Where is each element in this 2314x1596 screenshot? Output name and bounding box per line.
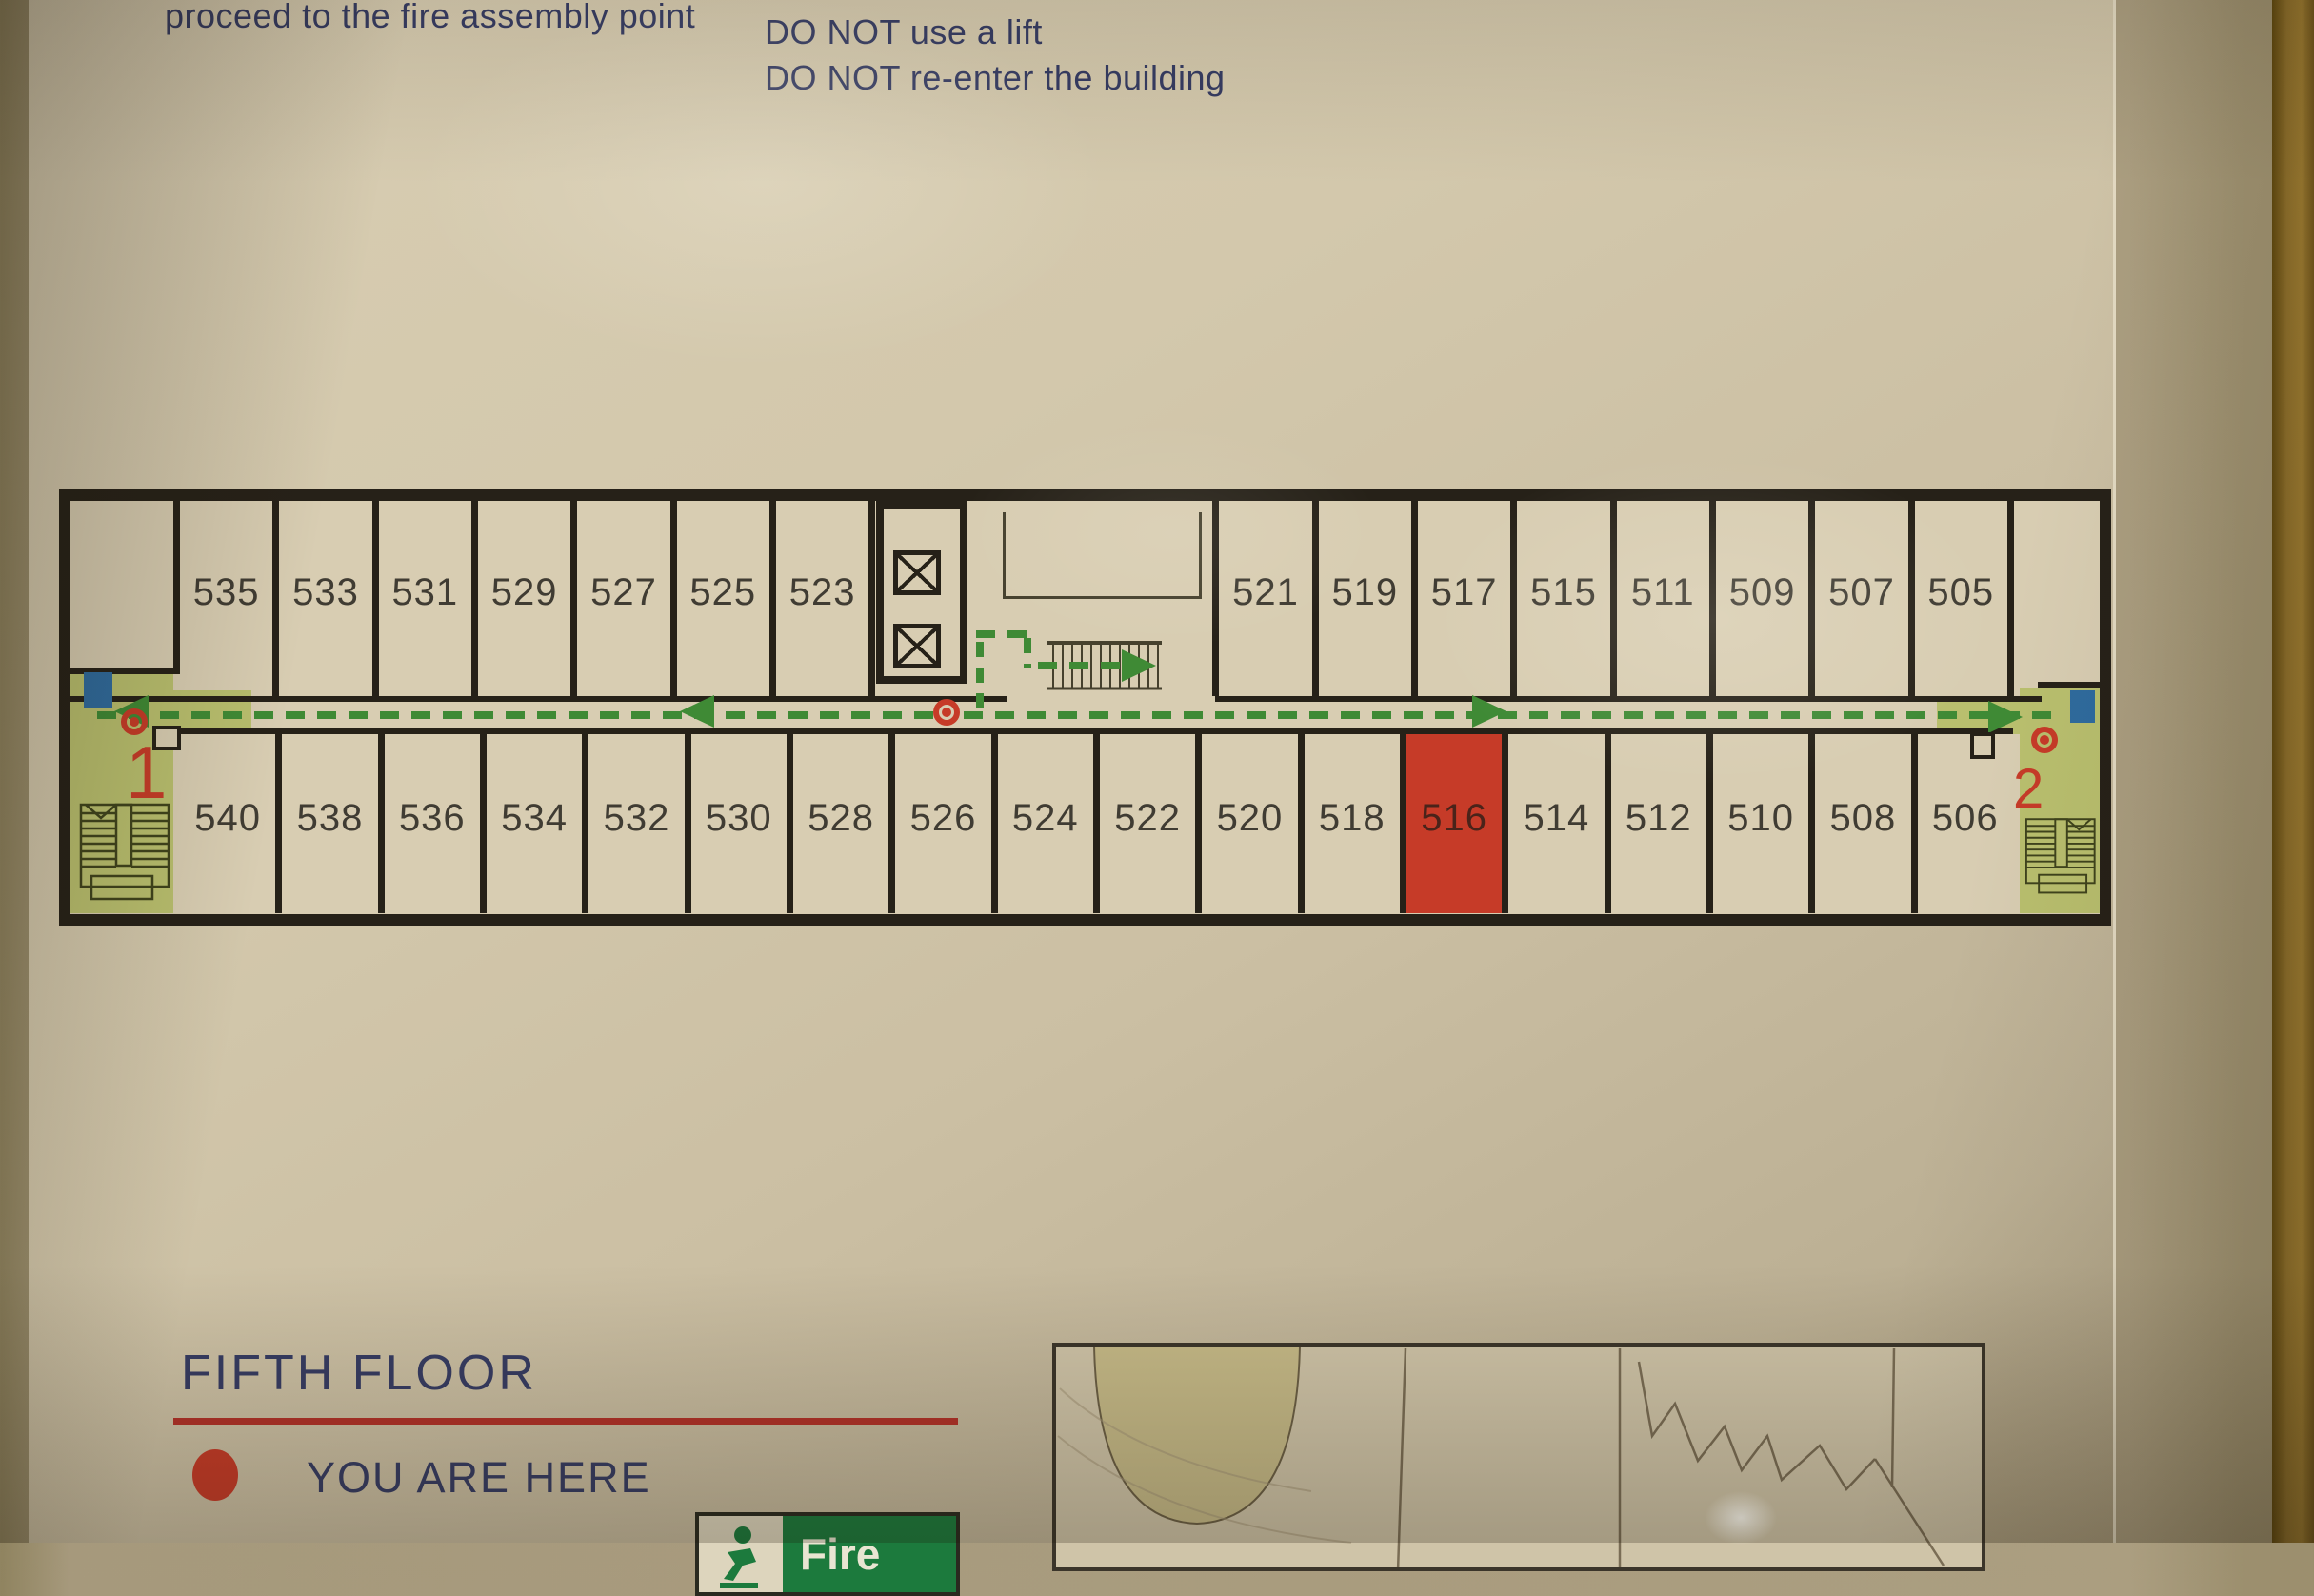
room-number: 540 [194,797,261,840]
you-are-here-label: YOU ARE HERE [307,1453,651,1503]
lobby-recess-wall [1003,512,1006,598]
room-536: 536 [385,734,487,913]
refuge-point-icon-right [2070,690,2095,723]
route-branch-stem [1038,662,1122,669]
room-number: 519 [1331,571,1398,614]
corridor-route-right [964,711,2054,719]
instruction-line-reenter: DO NOT re-enter the building [765,55,1374,101]
lift-block [876,501,967,684]
lobby-recess-wall [1003,596,1202,599]
room-532: 532 [588,734,690,913]
room-number: 523 [789,571,856,614]
room-number: 505 [1927,571,1994,614]
room-512: 512 [1611,734,1713,913]
room-509: 509 [1716,501,1815,696]
room-526: 526 [895,734,997,913]
lobby-recess-wall [1199,512,1202,599]
room-505: 505 [1915,501,2014,696]
instruction-line-shout: DO NOT shout or run [765,0,1374,10]
reflection-highlight [1705,1491,1777,1545]
fire-exit-label: Fire [783,1516,956,1592]
room-521: 521 [1219,501,1318,696]
room-533: 533 [279,501,378,696]
floor-plan-interior: 535533531529527525523 521519517515511509… [70,501,2100,914]
room-510: 510 [1713,734,1815,913]
room-528: 528 [793,734,895,913]
instruction-proceed: proceed to the fire assembly point [165,0,774,36]
site-map-sketch [1056,1347,1982,1571]
room-522: 522 [1100,734,1202,913]
room-number: 520 [1217,797,1284,840]
room-number: 510 [1727,797,1794,840]
room-number: 508 [1830,797,1897,840]
stair-number-1: 1 [126,735,167,809]
room-number: 516 [1421,797,1487,840]
room-number: 506 [1932,797,1999,840]
fire-alarm-point-icon [2031,727,2058,753]
room-group-top-left: 535533531529527525523 [180,501,875,696]
route-arrow-right-icon [1472,695,1506,728]
room-515: 515 [1517,501,1616,696]
staircase-icon-right [2023,808,2097,907]
staircase-icon-left [78,802,173,905]
room-group-top-right: 521519517515511509507505 [1212,501,2014,696]
room-number: 511 [1631,571,1695,614]
room-531: 531 [379,501,478,696]
room-524: 524 [998,734,1100,913]
room-unnumbered-top-left [70,501,180,668]
room-517: 517 [1418,501,1517,696]
photo-of-fire-evacuation-sign: { "instructions": { "left_partial": "pro… [0,0,2314,1543]
room-number: 518 [1319,797,1386,840]
lift-icon [893,550,941,595]
room-number: 509 [1729,571,1796,614]
room-number: 517 [1431,571,1498,614]
room-520: 520 [1202,734,1304,913]
corridor-wall-bottom [180,728,2013,734]
room-516: 516 [1406,734,1508,913]
route-arrow-into-stair-icon [1122,649,1156,682]
room-525: 525 [677,501,776,696]
room-519: 519 [1319,501,1418,696]
room-number: 514 [1524,797,1590,840]
route-arrow-left-icon [680,695,714,728]
room-number: 522 [1114,797,1181,840]
instruction-do-not-list: DO NOT shout or run DO NOT use a lift DO… [765,0,1374,101]
room-514: 514 [1508,734,1610,913]
room-530: 530 [691,734,793,913]
room-number: 531 [391,571,458,614]
room-number: 525 [689,571,756,614]
fire-alarm-point-icon [933,699,960,726]
title-divider-rule [173,1418,958,1425]
room-number: 533 [292,571,359,614]
fire-exit-legend-sign: Fire [695,1512,960,1596]
wood-door-frame [2272,0,2314,1543]
room-538: 538 [282,734,384,913]
room-535: 535 [180,501,279,696]
room-540: 540 [180,734,282,913]
route-branch-horizontal [976,630,1031,638]
room-number: 528 [808,797,874,840]
room-number: 526 [910,797,977,840]
room-row-bottom: 5405385365345325305285265245225205185165… [180,734,2013,913]
room-number: 524 [1012,797,1079,840]
room-number: 515 [1530,571,1597,614]
instruction-line-lift: DO NOT use a lift [765,10,1374,55]
room-506: 506 [1918,734,2013,913]
room-number: 535 [193,571,260,614]
room-number: 536 [399,797,466,840]
route-arrow-right-icon [1988,701,2023,733]
room-number: 512 [1626,797,1692,840]
room-unnumbered-top-right [2014,501,2100,696]
room-507: 507 [1815,501,1914,696]
route-branch-vertical [976,642,984,708]
room-number: 507 [1828,571,1895,614]
room-534: 534 [487,734,588,913]
room-511: 511 [1617,501,1716,696]
room-number: 529 [491,571,558,614]
room-number: 534 [501,797,568,840]
evacuation-sign-panel: proceed to the fire assembly point DO NO… [29,0,2116,1543]
running-person-icon [699,1516,783,1592]
room-number: 532 [604,797,670,840]
you-are-here-dot-icon [192,1449,238,1501]
room-number: 527 [590,571,657,614]
room-number: 530 [706,797,772,840]
corridor-wall-top-left-segment [70,696,1007,702]
route-branch-drop [1024,638,1031,668]
floor-plan: 535533531529527525523 521519517515511509… [59,489,2111,926]
room-518: 518 [1305,734,1406,913]
room-number: 521 [1232,571,1299,614]
room-523: 523 [776,501,875,696]
site-map [1052,1343,1985,1571]
room-527: 527 [577,501,676,696]
room-508: 508 [1815,734,1917,913]
refuge-point-icon-left [84,672,112,708]
stair-number-2: 2 [2013,762,2044,817]
wall-above-right-stair [2038,682,2100,688]
corridor-wall-top-right-segment [1215,696,2042,702]
room-number: 538 [297,797,364,840]
lift-icon [893,624,941,668]
exit-door-icon-right [1970,732,1995,759]
floor-title: FIFTH FLOOR [181,1345,537,1402]
room-529: 529 [478,501,577,696]
corridor-route-left [97,711,935,719]
